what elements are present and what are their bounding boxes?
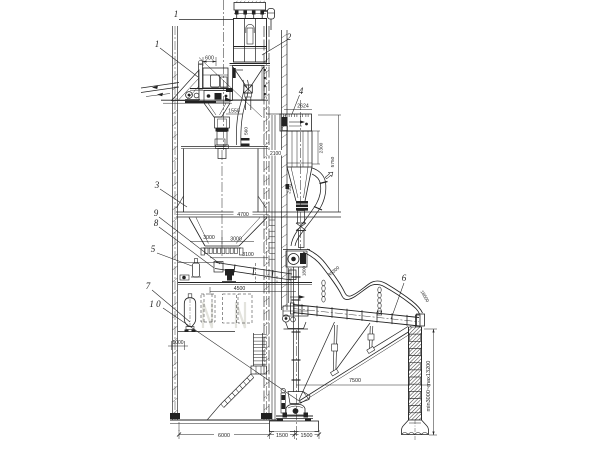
svg-text:560: 560	[244, 127, 250, 135]
svg-text:5: 5	[151, 244, 156, 254]
svg-text:6: 6	[402, 273, 407, 283]
svg-text:4500: 4500	[234, 286, 246, 292]
svg-text:1800: 1800	[302, 265, 307, 276]
svg-text:min3000~max13200: min3000~max13200	[426, 361, 432, 412]
svg-text:4700: 4700	[237, 212, 249, 218]
svg-text:1000: 1000	[172, 340, 183, 346]
svg-text:3: 3	[154, 180, 160, 190]
svg-text:3000: 3000	[203, 235, 215, 241]
svg-text:6000: 6000	[218, 433, 230, 439]
svg-text:1: 1	[155, 39, 160, 49]
svg-text:9: 9	[154, 208, 159, 218]
svg-text:4: 4	[299, 86, 304, 96]
svg-text:2: 2	[287, 32, 292, 42]
svg-text:5750: 5750	[330, 156, 336, 167]
svg-text:1500: 1500	[276, 433, 288, 439]
svg-text:3000: 3000	[230, 237, 242, 243]
svg-text:7: 7	[146, 281, 151, 291]
svg-text:600: 600	[205, 56, 214, 62]
svg-text:7500: 7500	[349, 378, 361, 384]
svg-text:3100: 3100	[242, 252, 254, 258]
svg-text:1 0: 1 0	[149, 299, 161, 309]
svg-text:1500: 1500	[301, 433, 313, 439]
svg-text:8: 8	[154, 218, 159, 228]
svg-text:2624: 2624	[297, 104, 309, 110]
svg-text:2300: 2300	[319, 142, 325, 153]
svg-text:1: 1	[174, 9, 179, 19]
svg-text:2100: 2100	[270, 151, 281, 157]
